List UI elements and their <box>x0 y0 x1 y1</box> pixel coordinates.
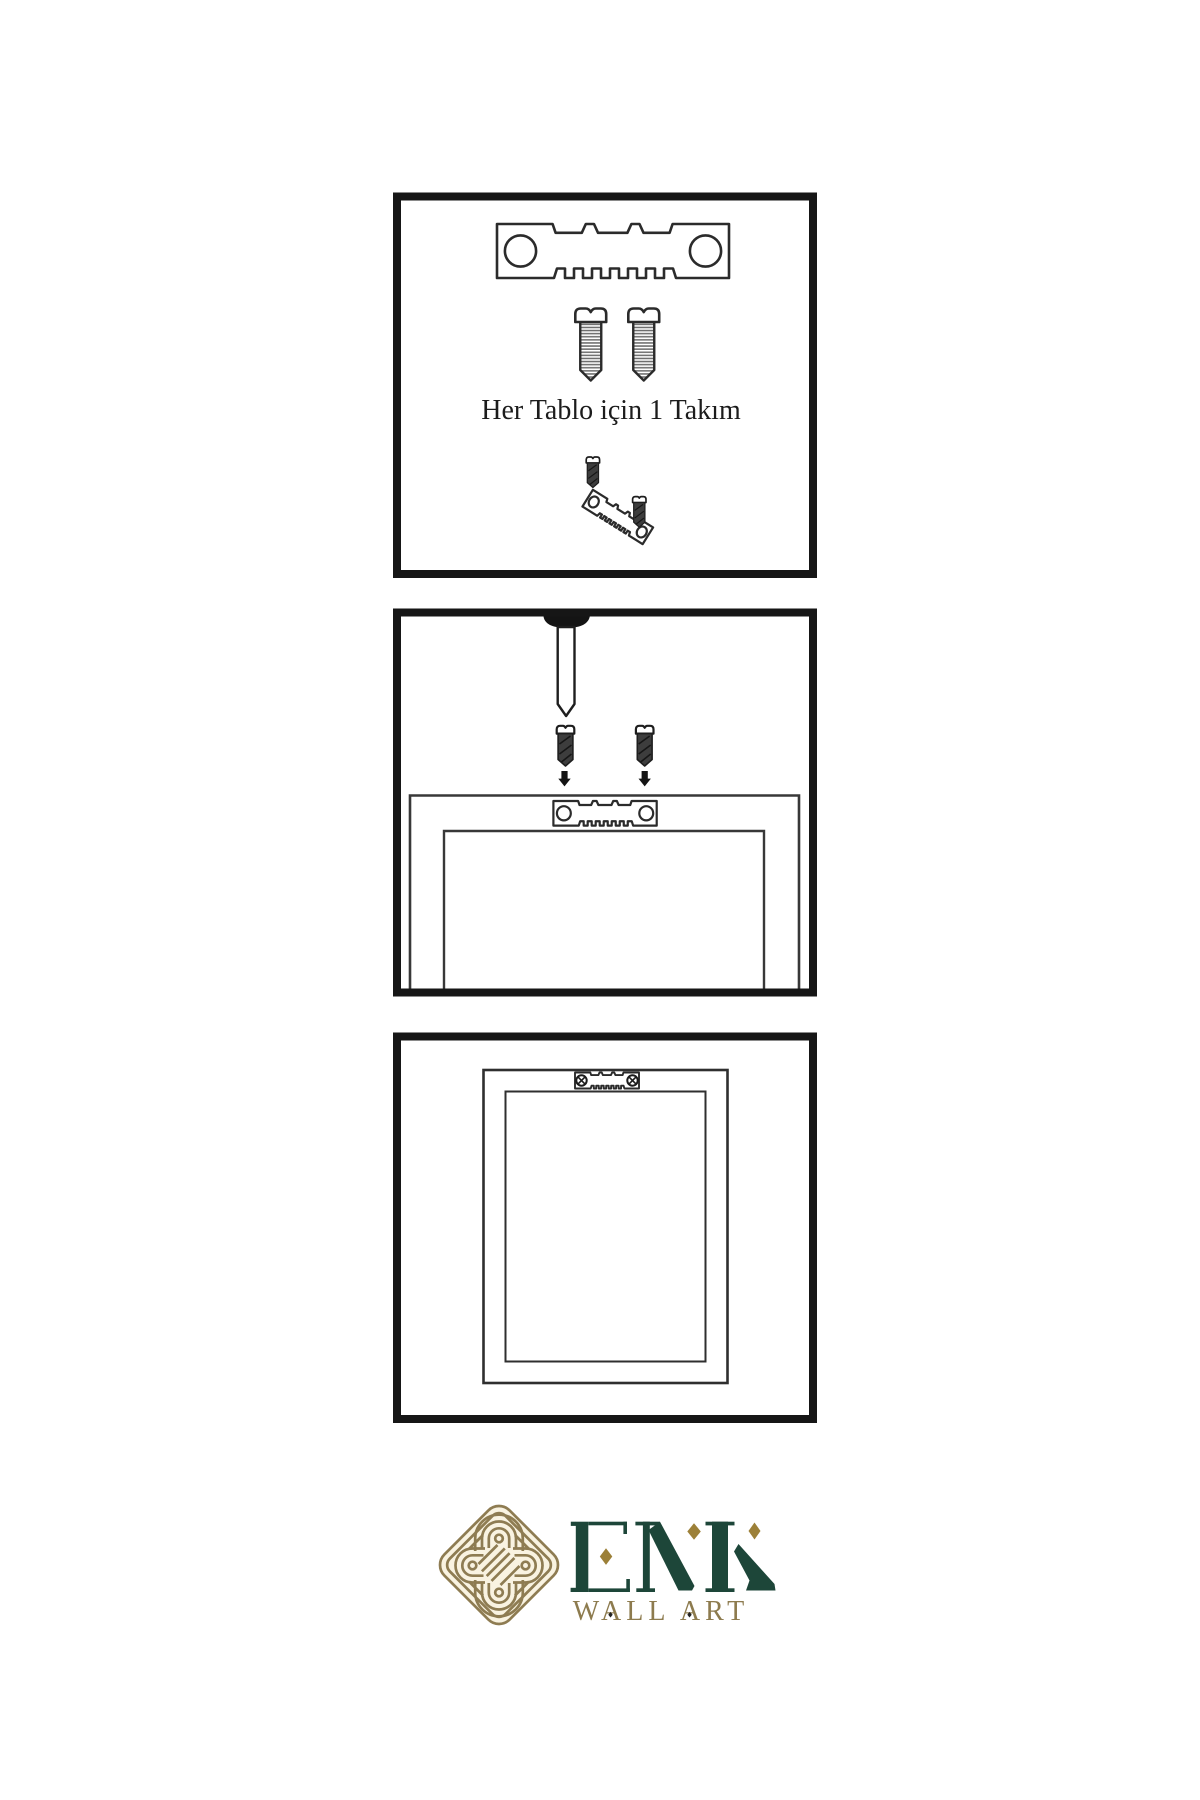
svg-text:Her Tablo için 1 Takım: Her Tablo için 1 Takım <box>481 395 741 426</box>
svg-text:WALL ART: WALL ART <box>573 1596 750 1627</box>
